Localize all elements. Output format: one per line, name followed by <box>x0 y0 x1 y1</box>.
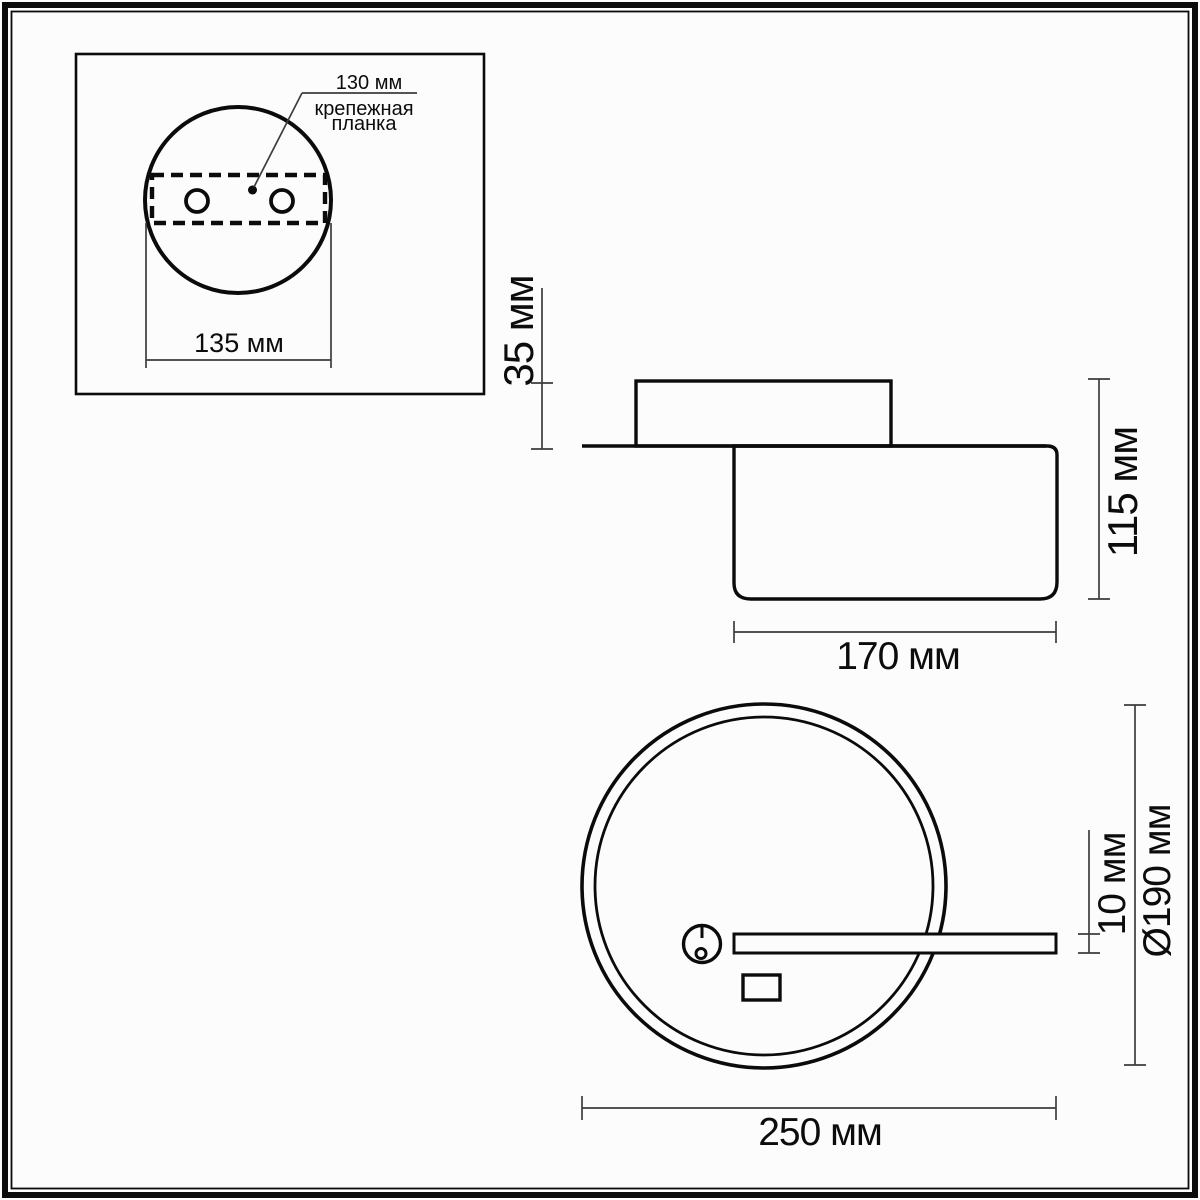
arm-thickness-label: 10 мм <box>1091 833 1134 936</box>
body-width-label: 170 мм <box>836 635 960 678</box>
mount-height-label: 35 мм <box>495 275 542 386</box>
total-height-label: 115 мм <box>1099 427 1146 557</box>
mounting-hole-left <box>186 190 208 212</box>
technical-drawing-canvas: 130 мм крепежная планка 135 мм 35 мм <box>0 0 1200 1200</box>
plate-width-label: 135 мм <box>194 328 284 358</box>
plate-center-dot <box>248 186 257 195</box>
callout-value-label: 130 мм <box>336 72 402 94</box>
ring-diameter-label: Ø190 мм <box>1136 805 1179 958</box>
drawing-svg: 130 мм крепежная планка 135 мм 35 мм <box>0 0 1200 1200</box>
ring-outer-circle <box>582 704 946 1068</box>
front-view: 10 мм Ø190 мм 250 мм <box>582 704 1179 1154</box>
base-outline-circle <box>145 107 331 293</box>
arm-bar <box>734 934 1056 953</box>
power-switch-icon <box>684 926 721 963</box>
mounting-hole-right <box>271 190 293 212</box>
callout-text-line2: планка <box>332 113 398 135</box>
lamp-body-outline <box>734 446 1057 599</box>
mount-box-outline <box>636 381 891 446</box>
ring-inner-circle <box>595 717 933 1055</box>
side-view: 35 мм 115 мм 170 мм <box>495 275 1146 678</box>
junction-box-rect <box>743 975 780 1000</box>
mounting-inset-view: 130 мм крепежная планка 135 мм <box>76 54 484 394</box>
total-width-label: 250 мм <box>758 1111 882 1154</box>
mounting-plate-dashed-rect <box>152 175 325 223</box>
